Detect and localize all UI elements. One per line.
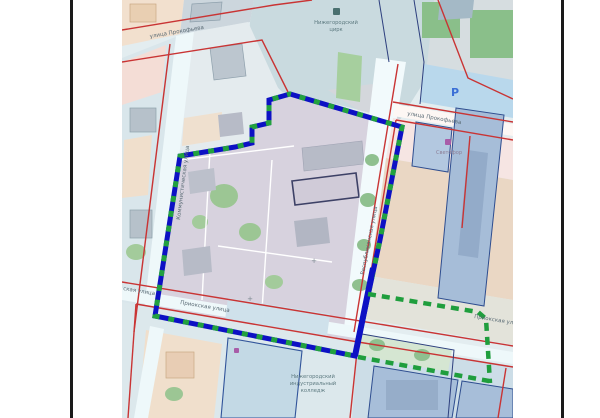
building xyxy=(190,2,222,22)
green-patch xyxy=(239,223,261,241)
map-svg: P + + Нижегородский цирк Светофор Нижего… xyxy=(122,0,513,418)
building xyxy=(130,4,156,22)
survey-plus-marker: + xyxy=(247,295,253,303)
building-inner xyxy=(386,380,438,410)
college-building xyxy=(221,338,302,418)
green-patch xyxy=(265,275,283,289)
building xyxy=(294,217,330,247)
poi-college-name2: индустриальный xyxy=(290,380,336,387)
parking-icon: P xyxy=(451,86,459,99)
map-figure: P + + Нижегородский цирк Светофор Нижего… xyxy=(122,0,513,418)
building xyxy=(218,112,244,137)
frame-border-left xyxy=(70,0,73,418)
lawn xyxy=(470,10,513,58)
shop-icon xyxy=(234,348,239,353)
building xyxy=(130,108,156,132)
building xyxy=(182,246,212,276)
frame-border-right xyxy=(561,0,564,418)
pond xyxy=(438,0,474,20)
tree xyxy=(360,193,376,207)
poi-circus-name2: цирк xyxy=(329,27,342,33)
building xyxy=(188,168,216,194)
building xyxy=(166,352,194,378)
green-patch xyxy=(336,52,362,102)
poi-college-name3: колледж xyxy=(301,388,326,394)
document-page: P + + Нижегородский цирк Светофор Нижего… xyxy=(0,0,600,418)
building-blue xyxy=(412,122,452,172)
poi-circus-name: Нижегородский xyxy=(314,19,358,26)
block-beige xyxy=(122,135,152,198)
poi-college-name1: Нижегородский xyxy=(291,373,335,380)
survey-plus-marker: + xyxy=(311,257,317,265)
tree xyxy=(352,279,368,291)
circus-icon xyxy=(333,8,340,15)
green-patch xyxy=(165,387,183,401)
tree xyxy=(365,154,379,166)
poi-svetofor-name: Светофор xyxy=(436,150,462,156)
building xyxy=(210,44,246,80)
shop-icon xyxy=(445,139,451,145)
